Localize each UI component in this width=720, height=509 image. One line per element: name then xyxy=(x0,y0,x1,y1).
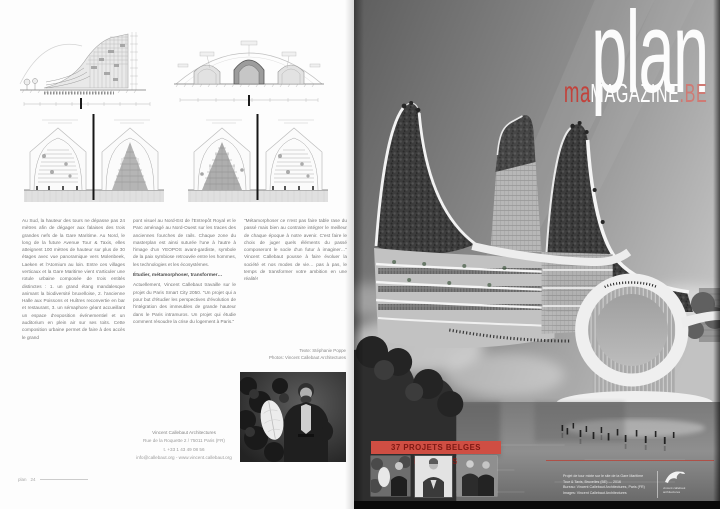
logo-subline: maMAGAZINE.BE xyxy=(564,76,707,110)
drawing-paired-sections-right-icon xyxy=(188,112,328,204)
article-credits: Texte: Stéphanie Poppe Photos: Vincent C… xyxy=(242,347,346,361)
credits-divider xyxy=(657,471,658,498)
logo-tld: .BE xyxy=(679,78,707,108)
projects-banner: 37 PROJETS BELGES ÉMINENTS xyxy=(371,441,501,454)
architect-logo-caption2: architectures xyxy=(663,490,707,495)
logo-ma-red: ma xyxy=(564,76,591,109)
article-col2-paragraph2: Actuellement, Vincent Callebaut travaill… xyxy=(133,281,236,325)
drawing-dome-section-icon xyxy=(170,22,330,110)
thumb-photo-1 xyxy=(371,456,410,496)
article-subheading: Étudier, métamorphoser, transformer… xyxy=(133,272,236,279)
credits-red-rule xyxy=(546,460,714,461)
article-body: Au Sud, la hauteur des tours ne dépasse … xyxy=(22,217,347,341)
drawing-paired-sections-left-icon xyxy=(24,112,164,204)
swan-logo-icon xyxy=(663,469,687,484)
architect-logo-block: vincent callebaut architectures xyxy=(663,469,707,495)
contact-address: Rue de la Roquette 2 / 75011 Paris (FR) xyxy=(126,437,242,445)
photo-credits: Projet de tour mixte sur le site de la G… xyxy=(563,474,659,496)
thumb-photo-2 xyxy=(415,456,452,497)
credit-photos: Photos: Vincent Callebaut Architectures xyxy=(242,354,346,361)
logo-magazine: MAGAZINE xyxy=(590,78,679,108)
contact-name: Vincent Callebaut Architectures xyxy=(126,429,242,437)
thumb-photo-3 xyxy=(457,456,497,496)
contact-web: info@callebaut.org - www.vincent.calleba… xyxy=(126,454,242,462)
page-bottom-strip xyxy=(354,501,720,509)
article-col2-paragraph: pont visuel au Nord-Est de l'Entrepôt Ro… xyxy=(133,217,236,268)
drawing-tower-section-icon xyxy=(16,20,158,112)
magazine-spread: Au Sud, la hauteur des tours ne dépasse … xyxy=(0,0,720,509)
credit-text: Texte: Stéphanie Poppe xyxy=(242,347,346,354)
article-column-3: "Métamorphoser ce n'est pas faire table … xyxy=(244,217,347,341)
photo-credit-line: Bureau: Vincent Callebaut Architectures,… xyxy=(563,485,659,491)
footer-rule xyxy=(40,479,88,480)
magazine-logo: plan maMAGAZINE.BE xyxy=(476,8,707,110)
contact-block: Vincent Callebaut Architectures Rue de l… xyxy=(126,429,242,462)
photo-credit-line: Images: Vincent Callebaut Architectures xyxy=(563,491,659,497)
contact-phone: t. +33 1 43 49 08 56 xyxy=(126,446,242,454)
article-quote: "Métamorphoser ce n'est pas faire table … xyxy=(244,217,347,283)
left-page: Au Sud, la hauteur des tours ne dépasse … xyxy=(0,0,354,509)
footer-brand: plan xyxy=(18,477,27,482)
architect-portrait-photo xyxy=(240,372,346,462)
footer-page-number: 24 xyxy=(31,477,36,482)
article-column-2: pont visuel au Nord-Est de l'Entrepôt Ro… xyxy=(133,217,236,341)
thumbnail-strip xyxy=(371,456,497,497)
article-column-1: Au Sud, la hauteur des tours ne dépasse … xyxy=(22,217,125,341)
page-footer: plan 24 xyxy=(18,477,88,482)
right-page: plan maMAGAZINE.BE 37 PROJETS BELGES ÉMI… xyxy=(354,0,720,509)
